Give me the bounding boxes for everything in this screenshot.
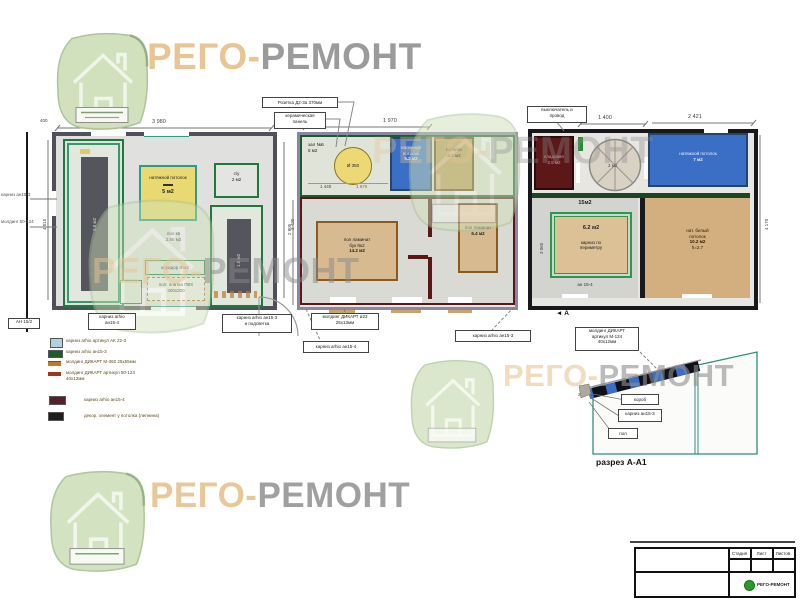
titleblock-logo-text: РЕГО-РЕМОНТ: [757, 582, 795, 588]
plan3-callout-switch: выключатель ипровод: [527, 106, 587, 123]
drawing-sheet: { "brand": {"prefix": "РЕГО-", "suffix":…: [0, 0, 800, 600]
section-callout-cornice: карниз ан15-3: [618, 409, 662, 422]
plan2-label-cornice3: карниз arhio ан15-3: [455, 330, 531, 342]
section-callout-floor: пол: [608, 428, 638, 439]
grid-line: [730, 558, 794, 560]
grid-line: [730, 571, 794, 573]
dimension-lines: [0, 0, 800, 600]
grid-line: [636, 571, 728, 573]
title-block: Стадия Лист Листов РЕГО-РЕМОНТ: [634, 547, 796, 598]
company-logo-icon: [744, 580, 755, 591]
section-label-molding: молдинг ДИКАРТартикул М-12440х12мм: [575, 327, 639, 351]
plan2-callout-socket: Розетка Д2-3а 370мм: [262, 97, 338, 108]
reference-tag: АН 15/2: [8, 318, 40, 329]
titleblock-col-sheets: Листов: [773, 551, 793, 557]
titleblock-col-stage: Стадия: [729, 551, 750, 557]
titleblock-col-sheet: Лист: [752, 551, 771, 557]
plan2-label-cornice4: карниз arhio ан15-4: [303, 341, 369, 353]
plan1-label-left: карниз arhioан15-4: [88, 313, 136, 330]
section-callout-box: короб: [621, 394, 659, 405]
plan2-label-molding: молдинг ДИКАРТ ø2325х13мм: [311, 313, 379, 330]
plan2-callout-panel: керамическаяпанель: [274, 112, 326, 129]
plan1-label-right: карниз arhio ан15-3и подсветка: [222, 314, 292, 333]
